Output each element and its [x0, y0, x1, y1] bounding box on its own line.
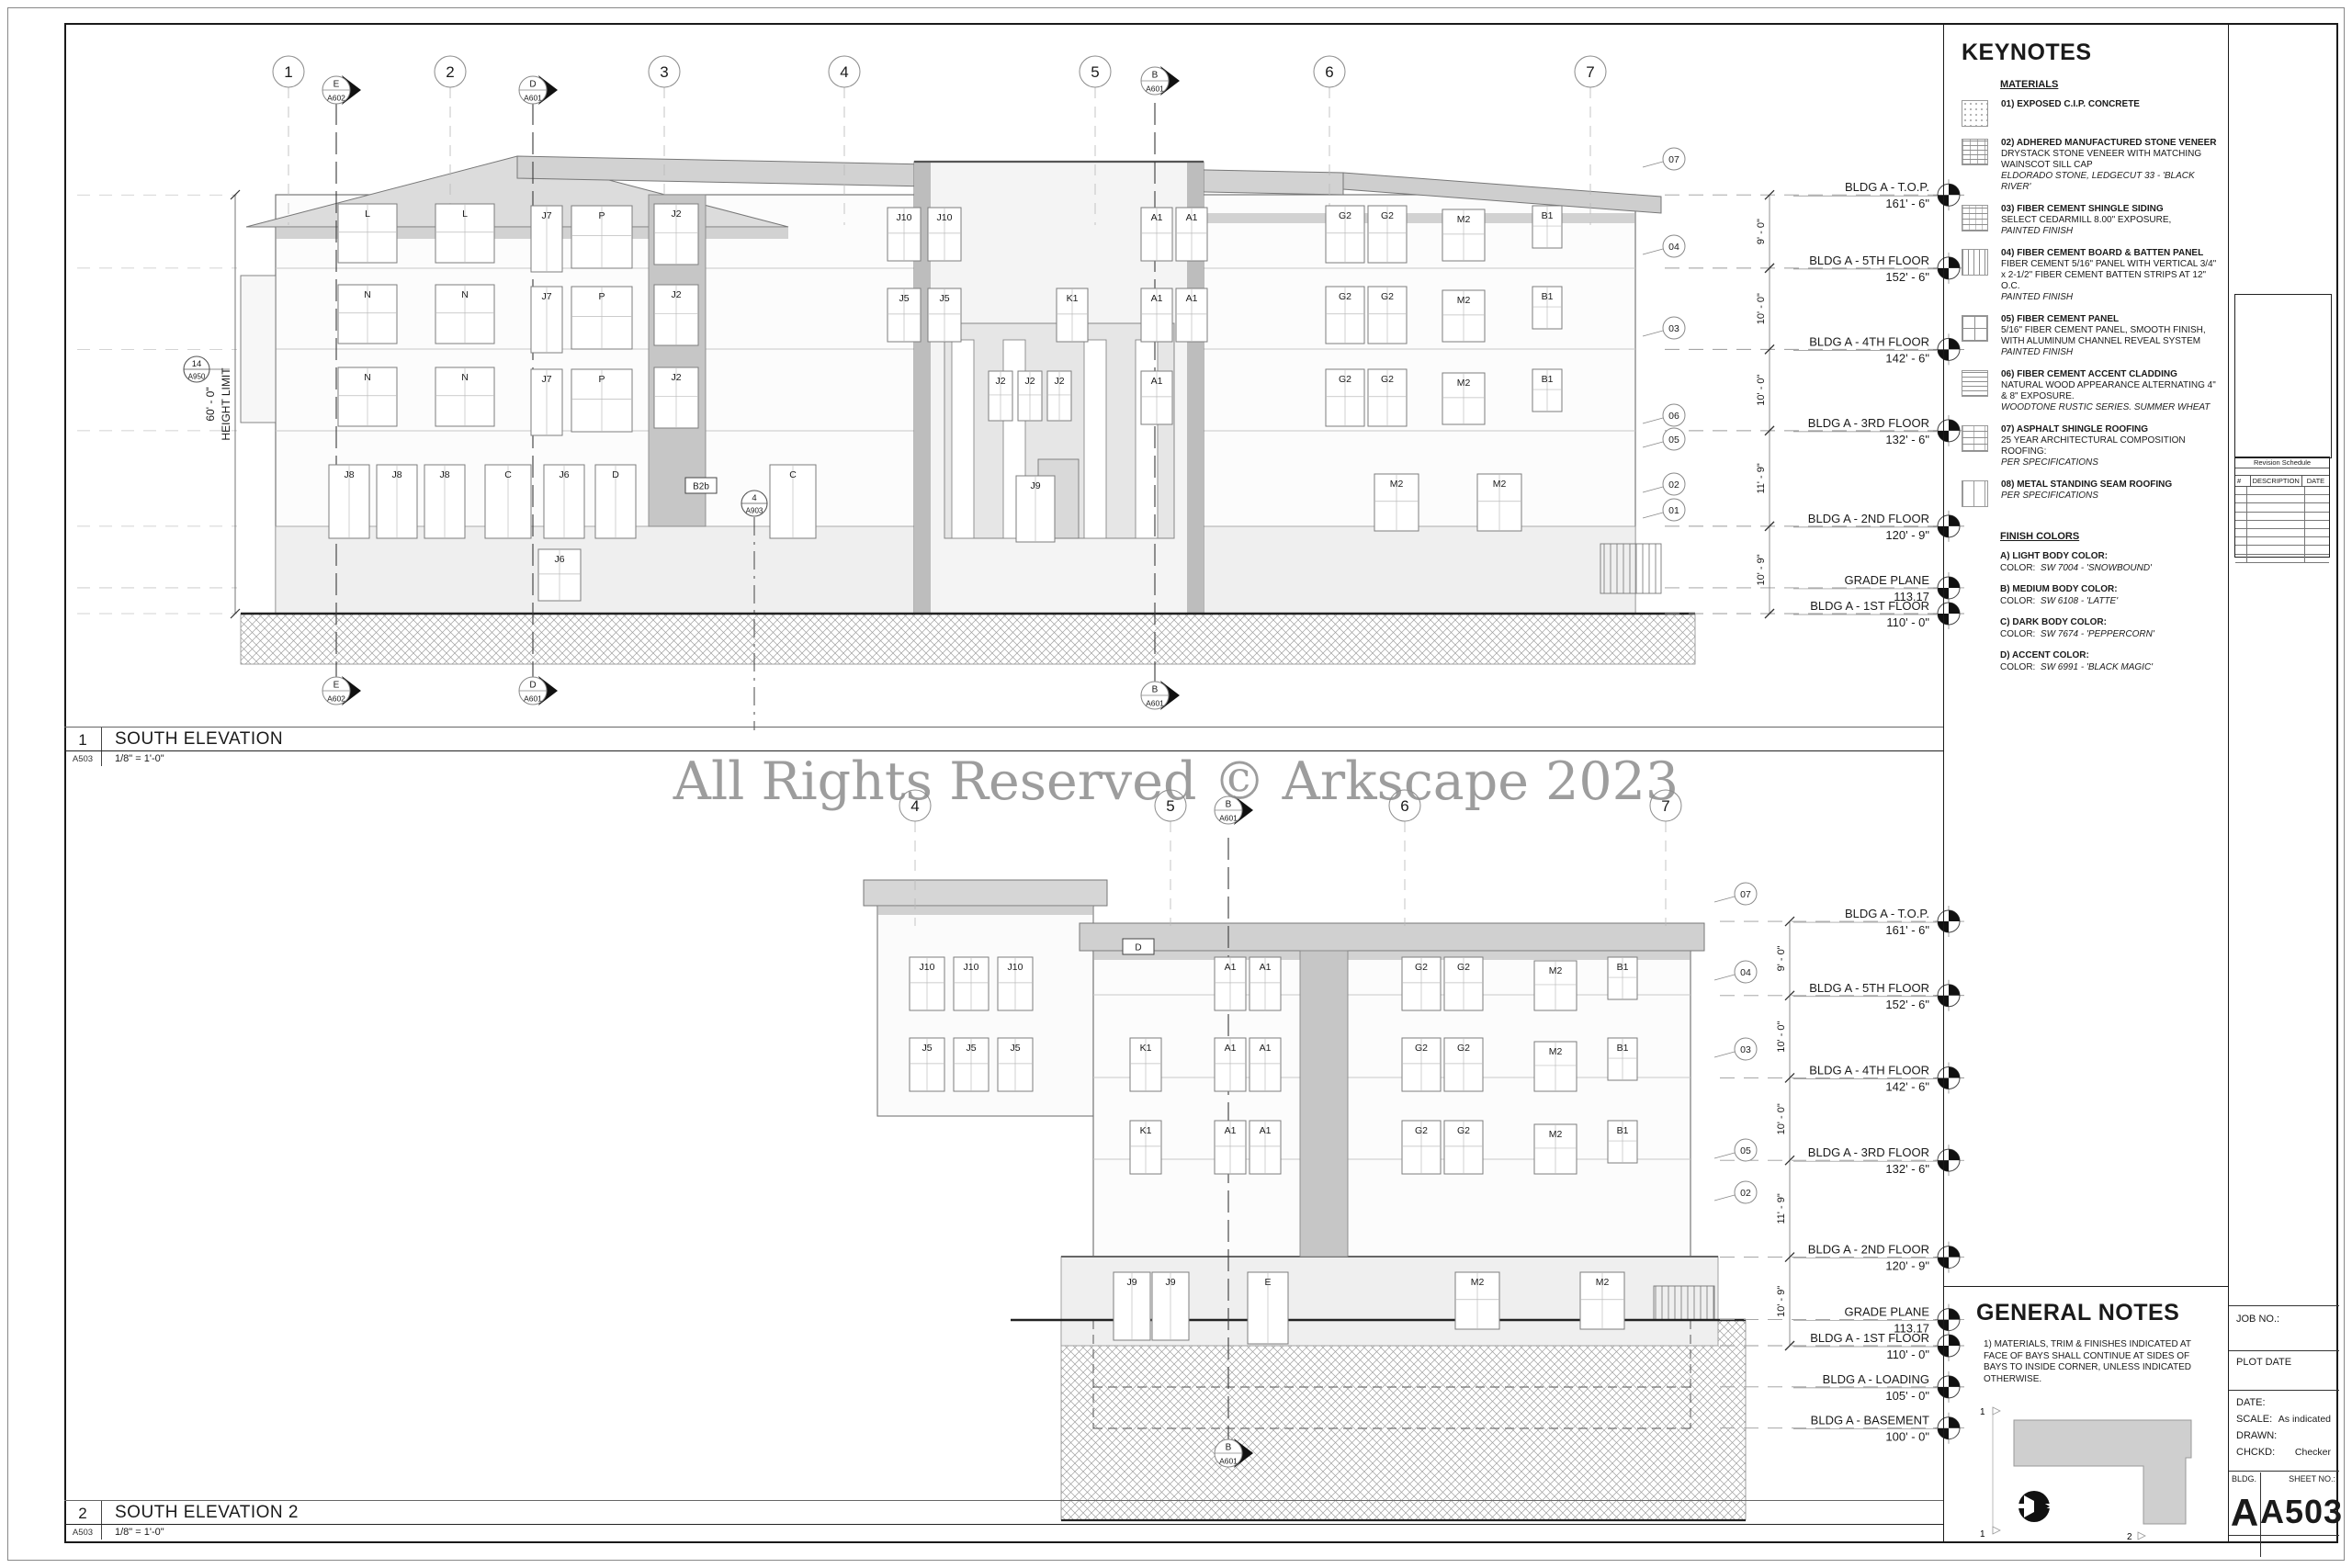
keynote-item: 04) FIBER CEMENT BOARD & BATTEN PANEL FI…	[1962, 248, 2222, 303]
view-scale: 1/8" = 1'-0"	[102, 1527, 164, 1538]
material-swatch-icon	[1962, 249, 1988, 276]
keyplan-marker-1b: 1	[1980, 1529, 1985, 1540]
chckd-label: CHCKD:	[2236, 1447, 2275, 1458]
revision-title: Revision Schedule	[2235, 457, 2329, 468]
keynote-spec: PER SPECIFICATIONS	[2001, 491, 2218, 502]
view-number: 2	[64, 1501, 102, 1524]
finish-color-item: C) DARK BODY COLOR: COLOR: SW 7674 - 'PE…	[2000, 617, 2211, 640]
finish-color-label: C) DARK BODY COLOR:	[2000, 617, 2211, 629]
general-notes-title: GENERAL NOTES	[1976, 1300, 2221, 1326]
finish-color-item: D) ACCENT COLOR: COLOR: SW 6991 - 'BLACK…	[2000, 650, 2211, 673]
stamp-box	[2234, 294, 2332, 458]
materials-heading: MATERIALS	[2000, 79, 2222, 90]
keynote-item: 01) EXPOSED C.I.P. CONCRETE	[1962, 99, 2222, 127]
keynote-desc: NATURAL WOOD APPEARANCE ALTERNATING 4" &…	[2001, 380, 2218, 402]
view-title-1: 1 SOUTH ELEVATION A503 1/8" = 1'-0"	[64, 727, 1943, 766]
job-no-label: JOB NO.:	[2236, 1314, 2279, 1325]
scale-value: As indicated	[2278, 1414, 2331, 1425]
finish-color-label: A) LIGHT BODY COLOR:	[2000, 551, 2211, 563]
color-value: SW 6108 - 'LATTE'	[2041, 596, 2118, 606]
keynote-item: 07) ASPHALT SHINGLE ROOFING 25 YEAR ARCH…	[1962, 424, 2222, 468]
keynote-head: 01) EXPOSED C.I.P. CONCRETE	[2001, 99, 2218, 110]
material-swatch-icon	[1962, 425, 1988, 452]
view-number: 1	[64, 728, 102, 750]
keynote-spec: WOODTONE RUSTIC SERIES. SUMMER WHEAT	[2001, 402, 2218, 413]
material-swatch-icon	[1962, 370, 1988, 397]
color-value: SW 7004 - 'SNOWBOUND'	[2041, 563, 2152, 573]
color-value: SW 7674 - 'PEPPERCORN'	[2041, 629, 2154, 639]
sheet-no-cell: SHEET NO.: A503	[2260, 1472, 2339, 1557]
view-sheet-ref: A503	[64, 1525, 102, 1540]
keynote-head: 03) FIBER CEMENT SHINGLE SIDING	[2001, 204, 2218, 215]
sheet-no-value: A503	[2260, 1493, 2339, 1531]
chckd-value: Checker	[2295, 1447, 2331, 1458]
keynotes-title: KEYNOTES	[1962, 39, 2222, 66]
title-block: Revision Schedule # DESCRIPTION DATE JOB…	[2228, 23, 2338, 1543]
finish-color-item: B) MEDIUM BODY COLOR: COLOR: SW 6108 - '…	[2000, 584, 2211, 607]
keynote-head: 04) FIBER CEMENT BOARD & BATTEN PANEL	[2001, 248, 2218, 259]
north-arrow-icon	[2018, 1491, 2050, 1522]
keynote-spec: ELDORADO STONE, LEDGECUT 33 - 'BLACK RIV…	[2001, 171, 2218, 193]
keynote-spec: PAINTED FINISH	[2001, 226, 2218, 237]
bldg-value: A	[2229, 1491, 2260, 1535]
keyplan-marker-1: 1	[1980, 1407, 1985, 1417]
revision-header: # DESCRIPTION DATE	[2235, 476, 2329, 487]
drawn-label: DRAWN:	[2236, 1430, 2277, 1441]
color-value: SW 6991 - 'BLACK MAGIC'	[2041, 662, 2153, 672]
keynote-desc: FIBER CEMENT 5/16" PANEL WITH VERTICAL 3…	[2001, 259, 2218, 292]
view-name: SOUTH ELEVATION 2	[102, 1503, 299, 1524]
keynote-item: 05) FIBER CEMENT PANEL 5/16" FIBER CEMEN…	[1962, 314, 2222, 358]
scale-label: SCALE:	[2236, 1414, 2272, 1425]
date-label: DATE:	[2236, 1397, 2266, 1408]
drawing-sheet: 1234567EA602DA601BA601EA602DA601BA601BLD…	[0, 0, 2352, 1568]
finish-color-label: B) MEDIUM BODY COLOR:	[2000, 584, 2211, 596]
keynote-item: 06) FIBER CEMENT ACCENT CLADDING NATURAL…	[1962, 369, 2222, 413]
keynote-desc: 25 YEAR ARCHITECTURAL COMPOSITION ROOFIN…	[2001, 435, 2218, 457]
keynote-head: 05) FIBER CEMENT PANEL	[2001, 314, 2218, 325]
keynote-head: 08) METAL STANDING SEAM ROOFING	[2001, 479, 2218, 491]
general-note-text: 1) MATERIALS, TRIM & FINISHES INDICATED …	[1984, 1339, 2209, 1385]
revision-schedule: Revision Schedule # DESCRIPTION DATE	[2234, 457, 2330, 558]
keynote-spec: PER SPECIFICATIONS	[2001, 457, 2218, 468]
color-prefix: COLOR:	[2000, 563, 2035, 573]
keynote-item: 08) METAL STANDING SEAM ROOFING PER SPEC…	[1962, 479, 2222, 507]
keynotes-panel: KEYNOTES MATERIALS 01) EXPOSED C.I.P. CO…	[1943, 23, 2228, 1286]
view-title-2: 2 SOUTH ELEVATION 2 A503 1/8" = 1'-0"	[64, 1500, 1943, 1540]
view-scale: 1/8" = 1'-0"	[102, 753, 164, 764]
keynote-desc: 5/16" FIBER CEMENT PANEL, SMOOTH FINISH,…	[2001, 325, 2218, 347]
material-swatch-icon	[1962, 100, 1988, 127]
view-name: SOUTH ELEVATION	[102, 729, 283, 750]
material-swatch-icon	[1962, 205, 1988, 231]
color-prefix: COLOR:	[2000, 596, 2035, 606]
keynote-head: 07) ASPHALT SHINGLE ROOFING	[2001, 424, 2218, 435]
plot-date-label: PLOT DATE	[2236, 1357, 2291, 1368]
keynote-head: 06) FIBER CEMENT ACCENT CLADDING	[2001, 369, 2218, 380]
finish-colors-heading: FINISH COLORS	[2000, 531, 2222, 542]
finish-color-label: D) ACCENT COLOR:	[2000, 650, 2211, 662]
bldg-cell: BLDG. A	[2229, 1472, 2261, 1557]
finish-color-list: A) LIGHT BODY COLOR: COLOR: SW 7004 - 'S…	[1962, 551, 2222, 673]
keynote-head: 02) ADHERED MANUFACTURED STONE VENEER	[2001, 138, 2218, 149]
color-prefix: COLOR:	[2000, 662, 2035, 672]
bldg-label: BLDG.	[2229, 1472, 2260, 1483]
keynote-item: 02) ADHERED MANUFACTURED STONE VENEER DR…	[1962, 138, 2222, 193]
sheet-no-label: SHEET NO.:	[2260, 1472, 2339, 1483]
keynote-desc: DRYSTACK STONE VENEER WITH MATCHING WAIN…	[2001, 149, 2218, 171]
keynote-spec: PAINTED FINISH	[2001, 347, 2218, 358]
material-swatch-icon	[1962, 315, 1988, 342]
material-swatch-icon	[1962, 139, 1988, 165]
keynote-list: 01) EXPOSED C.I.P. CONCRETE 02) ADHERED …	[1962, 99, 2222, 507]
finish-color-item: A) LIGHT BODY COLOR: COLOR: SW 7004 - 'S…	[2000, 551, 2211, 574]
key-plan: 1 1 2	[1963, 1394, 2239, 1551]
general-notes-panel: GENERAL NOTES 1) MATERIALS, TRIM & FINIS…	[1943, 1286, 2228, 1543]
keyplan-marker-2: 2	[2127, 1532, 2132, 1542]
keynote-desc: SELECT CEDARMILL 8.00" EXPOSURE,	[2001, 215, 2218, 226]
keynote-spec: PAINTED FINISH	[2001, 292, 2218, 303]
view-sheet-ref: A503	[64, 751, 102, 766]
color-prefix: COLOR:	[2000, 629, 2035, 639]
material-swatch-icon	[1962, 480, 1988, 507]
keynote-item: 03) FIBER CEMENT SHINGLE SIDING SELECT C…	[1962, 204, 2222, 237]
